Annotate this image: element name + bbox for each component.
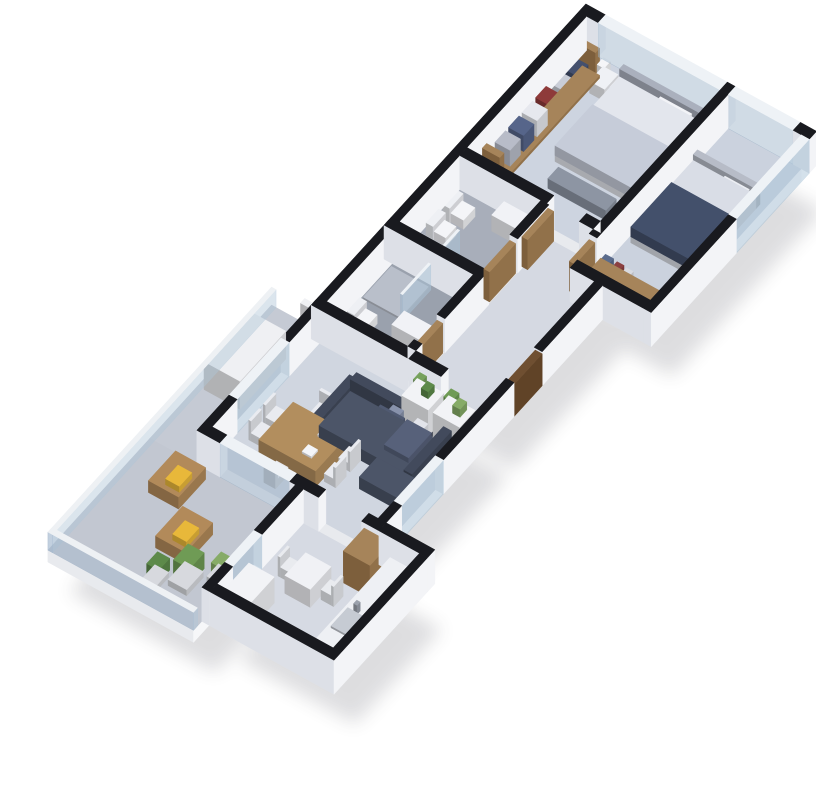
floor-plan-figure (0, 0, 816, 785)
floor-plan-3d-render (0, 0, 816, 785)
